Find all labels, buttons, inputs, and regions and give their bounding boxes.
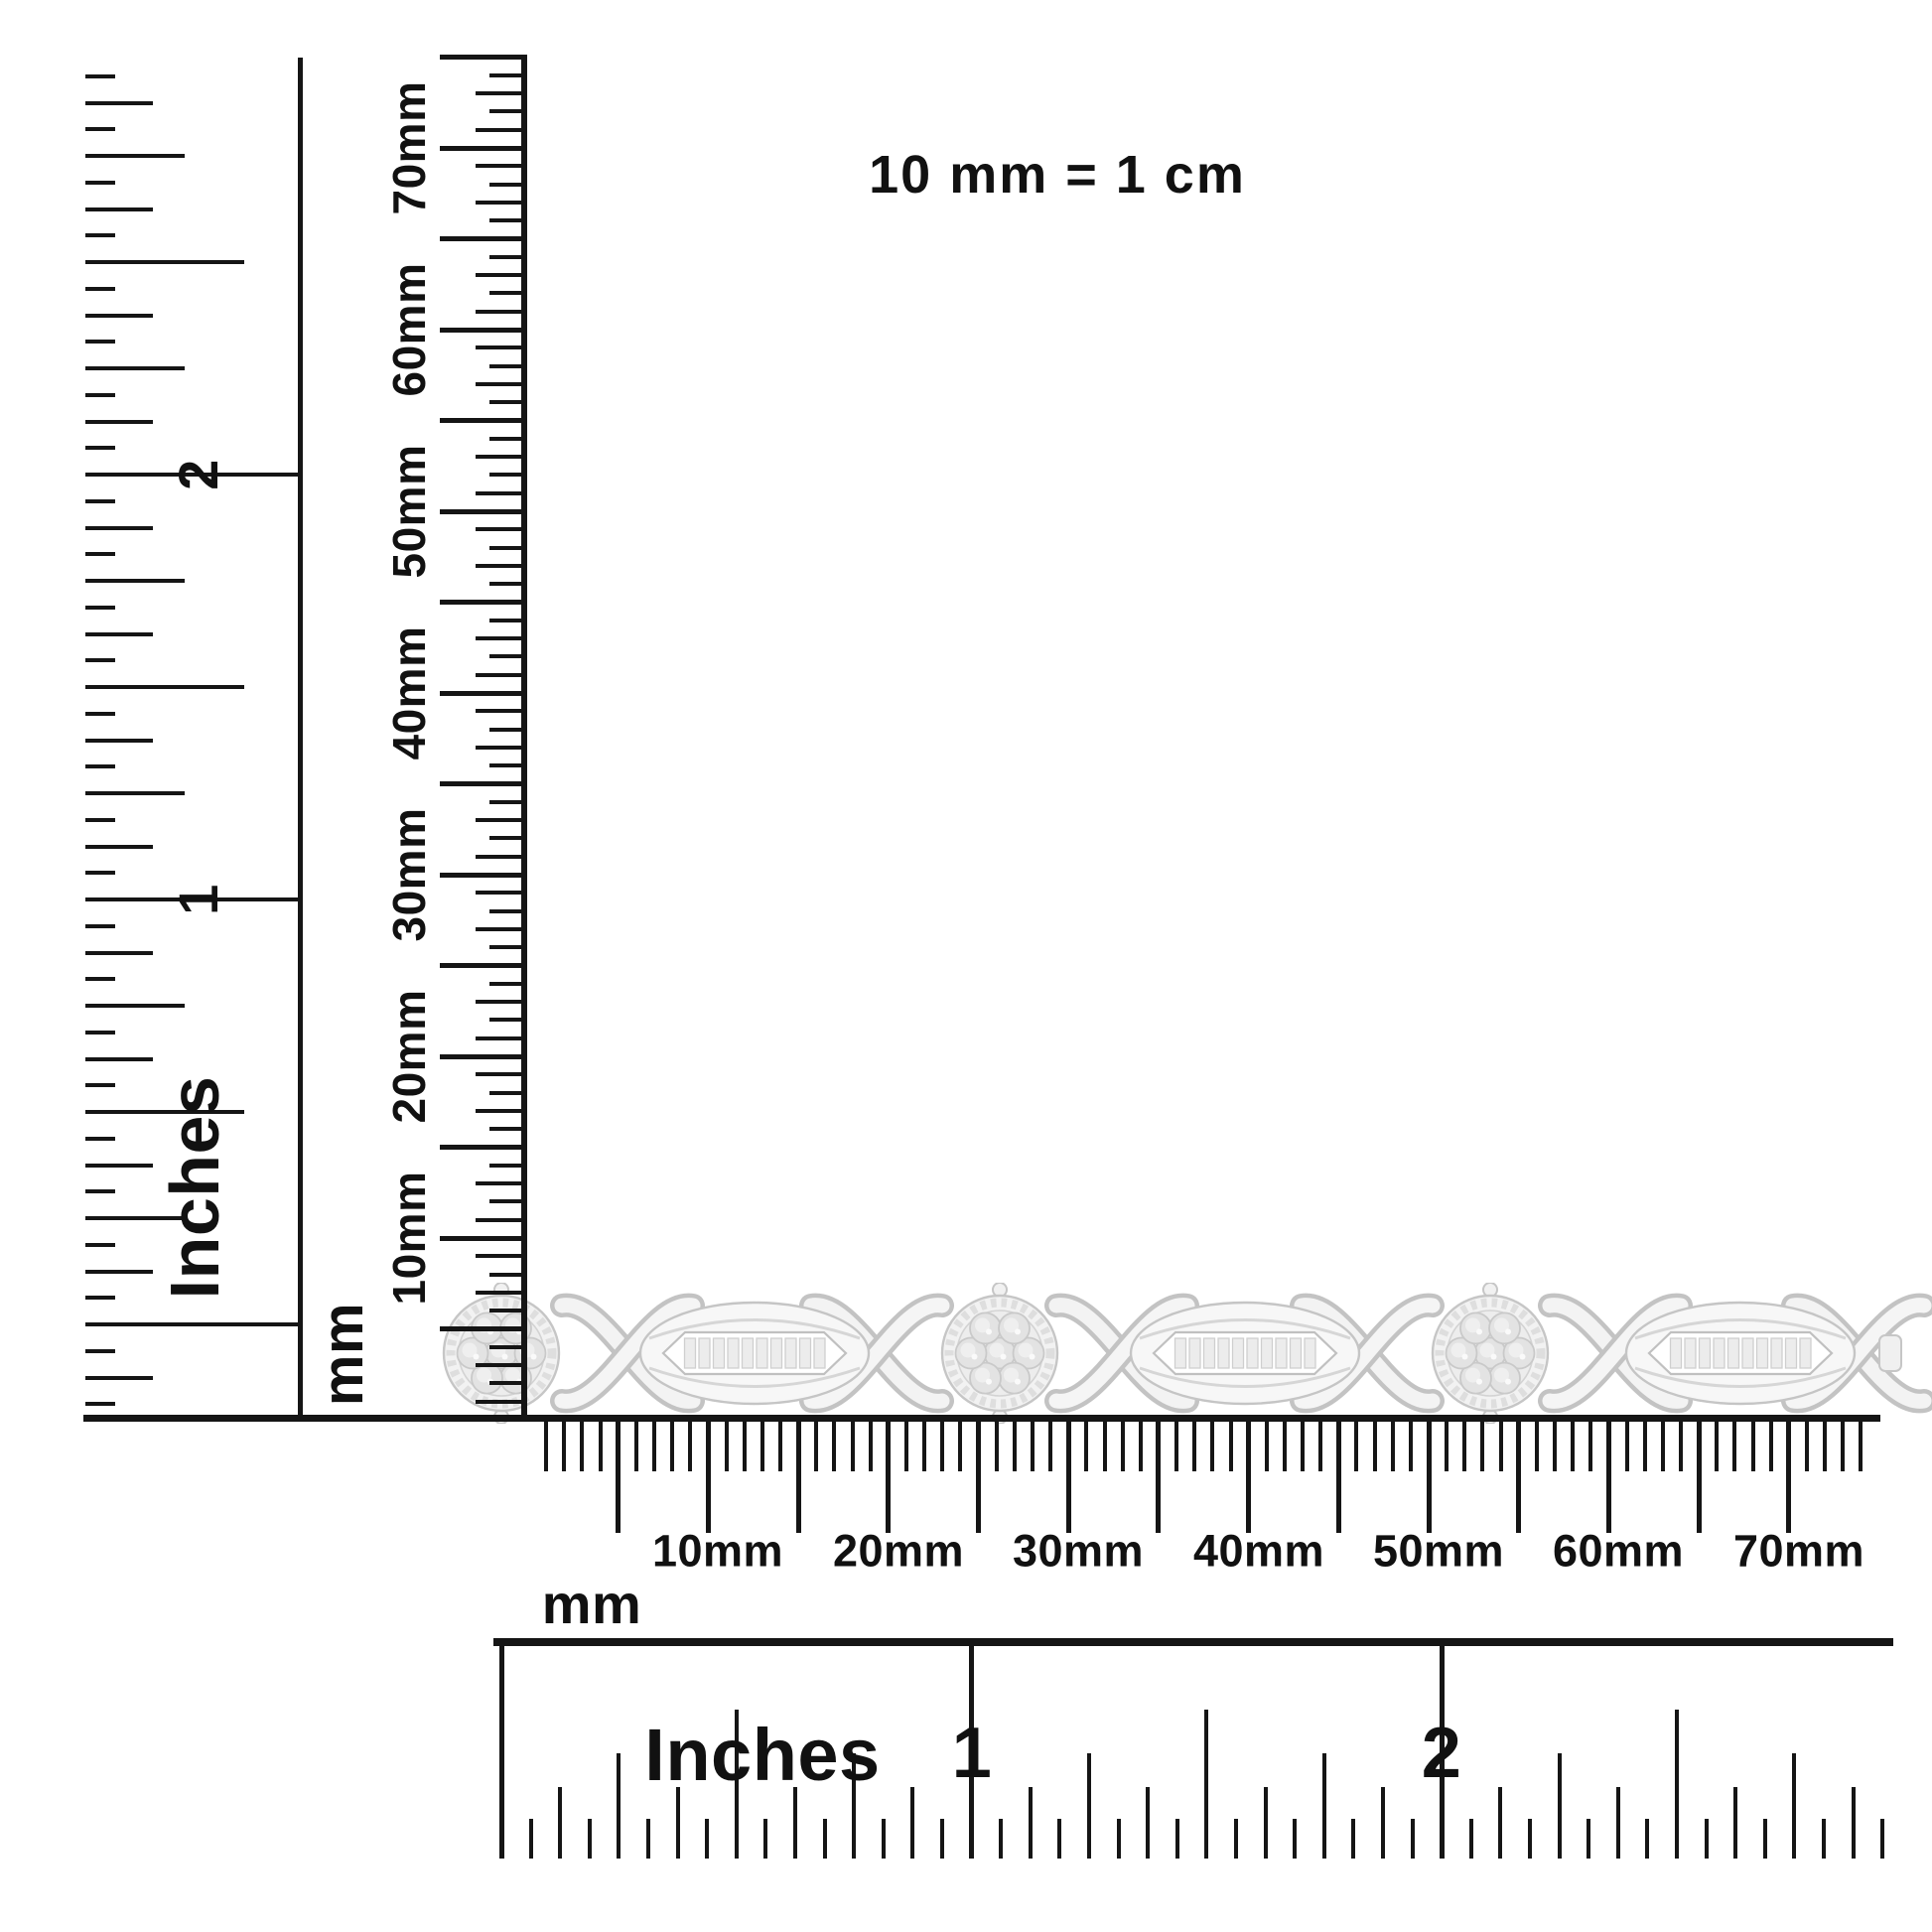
tick xyxy=(489,1018,527,1022)
tick xyxy=(476,1109,527,1113)
tick xyxy=(904,1422,908,1471)
tick xyxy=(476,1254,527,1258)
tick xyxy=(1528,1819,1532,1859)
tick xyxy=(652,1422,656,1471)
inch-number: 1 xyxy=(952,1718,993,1789)
tick xyxy=(440,873,527,878)
tick xyxy=(440,1054,527,1059)
tick xyxy=(476,673,527,677)
mm-label: 10mm xyxy=(386,1172,432,1306)
tick xyxy=(1571,1422,1575,1471)
tick xyxy=(476,455,527,459)
inch-number: 1 xyxy=(171,884,226,915)
tick xyxy=(476,164,527,168)
tick xyxy=(489,654,527,658)
tick xyxy=(1409,1422,1413,1471)
tick xyxy=(489,1127,527,1131)
tick xyxy=(476,855,527,859)
tick xyxy=(489,763,527,767)
tick xyxy=(489,183,527,187)
tick xyxy=(489,1309,527,1312)
tick xyxy=(1411,1819,1415,1859)
tick xyxy=(832,1422,836,1471)
tick xyxy=(499,1644,504,1859)
tick xyxy=(1174,1422,1178,1471)
tick xyxy=(85,101,153,105)
tick xyxy=(1391,1422,1395,1471)
tick xyxy=(476,345,527,349)
tick xyxy=(796,1422,801,1533)
tick xyxy=(1246,1422,1251,1533)
tick xyxy=(1675,1710,1679,1859)
tick xyxy=(85,260,244,264)
inch-number: 2 xyxy=(1422,1718,1462,1789)
tick xyxy=(85,446,115,450)
tick xyxy=(1103,1422,1107,1471)
tick xyxy=(85,1296,115,1300)
tick xyxy=(705,1819,709,1859)
tick xyxy=(489,619,527,622)
tick xyxy=(1301,1422,1305,1471)
clasp-tab xyxy=(1879,1335,1901,1371)
tick xyxy=(814,1422,818,1471)
tick xyxy=(1351,1819,1355,1859)
tick xyxy=(1087,1753,1091,1859)
tick xyxy=(1679,1422,1683,1471)
tick xyxy=(1146,1787,1150,1859)
tick xyxy=(725,1422,729,1471)
tick xyxy=(1786,1422,1791,1533)
tick xyxy=(85,1243,115,1247)
tick xyxy=(85,366,185,370)
tick xyxy=(85,1402,115,1406)
tick xyxy=(489,255,527,259)
tick xyxy=(1048,1422,1052,1471)
tick xyxy=(85,818,115,822)
tick xyxy=(85,1189,115,1193)
tick xyxy=(1792,1753,1796,1859)
left-inch-ruler-title: Inches xyxy=(160,1076,229,1300)
tick xyxy=(1822,1819,1826,1859)
tick xyxy=(1318,1422,1322,1471)
tick xyxy=(1661,1422,1665,1471)
tick xyxy=(85,951,153,955)
tick xyxy=(489,945,527,949)
tick xyxy=(476,818,527,822)
tick xyxy=(85,1137,115,1141)
tick xyxy=(85,791,185,795)
tick xyxy=(476,1363,527,1367)
tick xyxy=(763,1819,767,1859)
tick xyxy=(1587,1819,1590,1859)
tick xyxy=(85,499,115,503)
tick xyxy=(489,800,527,804)
scale-note: 10 mm = 1 cm xyxy=(869,144,1246,206)
tick xyxy=(616,1422,621,1533)
tick xyxy=(1616,1787,1620,1859)
tick xyxy=(476,1000,527,1004)
mm-label: 70mm xyxy=(386,81,432,215)
tick xyxy=(440,600,527,605)
tick xyxy=(440,963,527,968)
tick xyxy=(922,1422,926,1471)
tick xyxy=(476,310,527,314)
tick xyxy=(1427,1422,1432,1533)
tick xyxy=(1469,1819,1473,1859)
tick xyxy=(1117,1819,1121,1859)
tick xyxy=(778,1422,782,1471)
tick xyxy=(489,1273,527,1277)
tick xyxy=(440,1145,527,1150)
tick xyxy=(489,400,527,404)
tick xyxy=(489,836,527,840)
tick xyxy=(85,1057,153,1061)
tick xyxy=(440,781,527,786)
tick xyxy=(1480,1422,1484,1471)
tick xyxy=(489,1345,527,1349)
tick xyxy=(476,201,527,205)
tick xyxy=(995,1422,999,1471)
tick xyxy=(1697,1422,1702,1533)
tick xyxy=(85,1083,115,1087)
tick xyxy=(85,924,115,928)
tick xyxy=(1229,1422,1233,1471)
tick xyxy=(1805,1422,1809,1471)
tick xyxy=(85,658,115,662)
tick xyxy=(1751,1422,1755,1471)
tick xyxy=(476,1400,527,1404)
mm-label: 60mm xyxy=(1553,1529,1684,1574)
tick xyxy=(489,728,527,732)
tick xyxy=(476,1291,527,1295)
tick xyxy=(1625,1422,1629,1471)
tick xyxy=(489,546,527,550)
tick xyxy=(440,55,527,60)
bottom-mm-ruler-title: mm xyxy=(542,1577,642,1632)
tick xyxy=(85,871,115,875)
tick xyxy=(85,393,115,397)
tick xyxy=(489,364,527,368)
tick xyxy=(1445,1422,1449,1471)
tick xyxy=(1841,1422,1845,1471)
mm-label: 30mm xyxy=(1013,1529,1144,1574)
tick xyxy=(440,328,527,333)
tick xyxy=(440,1326,527,1331)
tick xyxy=(85,764,115,768)
tick xyxy=(1210,1422,1214,1471)
tick xyxy=(1715,1422,1719,1471)
tick xyxy=(634,1422,638,1471)
tick xyxy=(85,1164,153,1168)
tick xyxy=(1121,1422,1125,1471)
tick xyxy=(85,314,153,318)
tick xyxy=(1705,1819,1709,1859)
mm-label: 30mm xyxy=(386,808,432,942)
tick xyxy=(1645,1819,1649,1859)
tick xyxy=(1823,1422,1827,1471)
tick xyxy=(85,1004,185,1008)
tick xyxy=(1381,1787,1385,1859)
tick xyxy=(85,233,115,237)
tick xyxy=(489,909,527,913)
tick xyxy=(1588,1422,1592,1471)
tick xyxy=(85,712,115,716)
tick xyxy=(617,1753,621,1859)
tick xyxy=(999,1819,1003,1859)
mm-label: 40mm xyxy=(1193,1529,1324,1574)
tick xyxy=(489,1091,527,1095)
tick xyxy=(1354,1422,1358,1471)
tick xyxy=(1156,1422,1161,1533)
mm-label: 70mm xyxy=(1733,1529,1864,1574)
tick xyxy=(476,273,527,277)
tick xyxy=(476,382,527,386)
tick xyxy=(823,1819,827,1859)
tick xyxy=(743,1422,747,1471)
tick xyxy=(85,526,153,530)
tick xyxy=(85,127,115,131)
tick xyxy=(1498,1787,1502,1859)
tick xyxy=(489,473,527,477)
tick xyxy=(476,1181,527,1185)
tick xyxy=(489,218,527,222)
tick xyxy=(793,1787,797,1859)
tick xyxy=(85,74,115,78)
tick xyxy=(85,552,115,556)
tick xyxy=(1029,1787,1033,1859)
tick xyxy=(1265,1422,1269,1471)
tick xyxy=(1516,1422,1521,1533)
tick xyxy=(476,1036,527,1040)
bottom-inch-ruler-title: Inches xyxy=(644,1719,880,1792)
tick xyxy=(1558,1753,1562,1859)
tick xyxy=(476,927,527,931)
bottom-inch-ruler-spine xyxy=(493,1638,1893,1646)
tick xyxy=(1606,1422,1611,1533)
tick xyxy=(476,1218,527,1222)
mm-label: 20mm xyxy=(833,1529,964,1574)
tick xyxy=(476,527,527,531)
tick xyxy=(489,1164,527,1168)
tick xyxy=(85,207,153,211)
tick xyxy=(599,1422,603,1471)
tick xyxy=(869,1422,873,1471)
tick xyxy=(85,579,185,583)
tick xyxy=(1373,1422,1377,1471)
tick xyxy=(85,1349,115,1353)
tick xyxy=(85,685,244,689)
tick xyxy=(1763,1819,1767,1859)
tick xyxy=(489,73,527,77)
tick xyxy=(85,287,115,291)
tick xyxy=(85,1031,115,1035)
tick xyxy=(676,1787,680,1859)
tick xyxy=(1769,1422,1773,1471)
tick xyxy=(476,128,527,132)
tick xyxy=(1643,1422,1647,1471)
tick xyxy=(440,146,527,151)
tick xyxy=(670,1422,674,1471)
tick xyxy=(1234,1819,1238,1859)
inch-number: 2 xyxy=(171,459,226,490)
tick xyxy=(476,1072,527,1076)
mm-label: 50mm xyxy=(1373,1529,1504,1574)
tick xyxy=(476,746,527,750)
tick xyxy=(476,91,527,95)
tick xyxy=(1293,1819,1297,1859)
bracelet-image xyxy=(425,1283,1932,1424)
tick xyxy=(85,739,153,743)
tick xyxy=(85,606,115,610)
tick xyxy=(85,1322,300,1326)
tick xyxy=(85,181,115,185)
tick xyxy=(958,1422,962,1471)
tick xyxy=(544,1422,548,1471)
tick xyxy=(85,1376,153,1380)
tick xyxy=(1322,1753,1326,1859)
tick xyxy=(1066,1422,1071,1533)
left-inch-ruler-spine xyxy=(298,58,303,1420)
tick xyxy=(489,982,527,986)
tick xyxy=(886,1422,891,1533)
tick xyxy=(489,1381,527,1385)
tick xyxy=(706,1422,711,1533)
tick xyxy=(940,1422,944,1471)
tick xyxy=(588,1819,592,1859)
tick xyxy=(529,1819,533,1859)
tick xyxy=(476,709,527,713)
tick xyxy=(476,891,527,895)
left-mm-ruler-spine xyxy=(521,55,527,1420)
tick xyxy=(1499,1422,1503,1471)
mm-label: 50mm xyxy=(386,445,432,579)
horizontal-mm-ruler-spine xyxy=(83,1415,1880,1422)
tick xyxy=(1535,1422,1539,1471)
tick xyxy=(85,845,153,849)
tick xyxy=(1553,1422,1557,1471)
tick xyxy=(440,1236,527,1241)
tick xyxy=(558,1787,562,1859)
tick xyxy=(1462,1422,1466,1471)
tick xyxy=(440,236,527,241)
tick xyxy=(1057,1819,1061,1859)
tick xyxy=(440,509,527,514)
tick xyxy=(1852,1787,1856,1859)
tick xyxy=(1175,1819,1179,1859)
mm-label: 60mm xyxy=(386,263,432,397)
mm-label: 10mm xyxy=(652,1529,783,1574)
tick xyxy=(85,1270,153,1274)
tick xyxy=(1283,1422,1287,1471)
tick xyxy=(1013,1422,1017,1471)
tick xyxy=(1264,1787,1268,1859)
tick xyxy=(476,564,527,568)
tick xyxy=(646,1819,650,1859)
tick xyxy=(882,1819,886,1859)
tick xyxy=(1192,1422,1196,1471)
tick xyxy=(85,977,115,981)
tick xyxy=(1859,1422,1863,1471)
tick xyxy=(1204,1710,1208,1859)
tick xyxy=(489,582,527,586)
tick xyxy=(476,491,527,495)
mm-label: 20mm xyxy=(386,990,432,1124)
tick xyxy=(85,154,185,158)
tick xyxy=(976,1422,981,1533)
tick xyxy=(1084,1422,1088,1471)
tick xyxy=(489,437,527,441)
tick xyxy=(440,418,527,423)
tick xyxy=(489,291,527,295)
left-mm-ruler-title: mm xyxy=(315,1303,372,1406)
mm-label: 40mm xyxy=(386,626,432,760)
tick xyxy=(562,1422,566,1471)
tick xyxy=(1336,1422,1341,1533)
tick xyxy=(1733,1787,1737,1859)
tick xyxy=(940,1819,944,1859)
tick xyxy=(1732,1422,1736,1471)
tick xyxy=(489,1199,527,1203)
tick xyxy=(1880,1819,1884,1859)
tick xyxy=(1031,1422,1035,1471)
tick xyxy=(851,1422,855,1471)
tick xyxy=(489,109,527,113)
tick xyxy=(688,1422,692,1471)
tick xyxy=(910,1787,914,1859)
product-scale-image: 10 mm = 1 cm 12 70mm60mm50mm40mm30mm20mm… xyxy=(0,0,1932,1932)
tick xyxy=(85,340,115,344)
tick xyxy=(440,691,527,696)
tick xyxy=(580,1422,584,1471)
tick xyxy=(1139,1422,1143,1471)
tick xyxy=(760,1422,764,1471)
tick xyxy=(85,420,153,424)
tick xyxy=(476,636,527,640)
tick xyxy=(85,632,153,636)
